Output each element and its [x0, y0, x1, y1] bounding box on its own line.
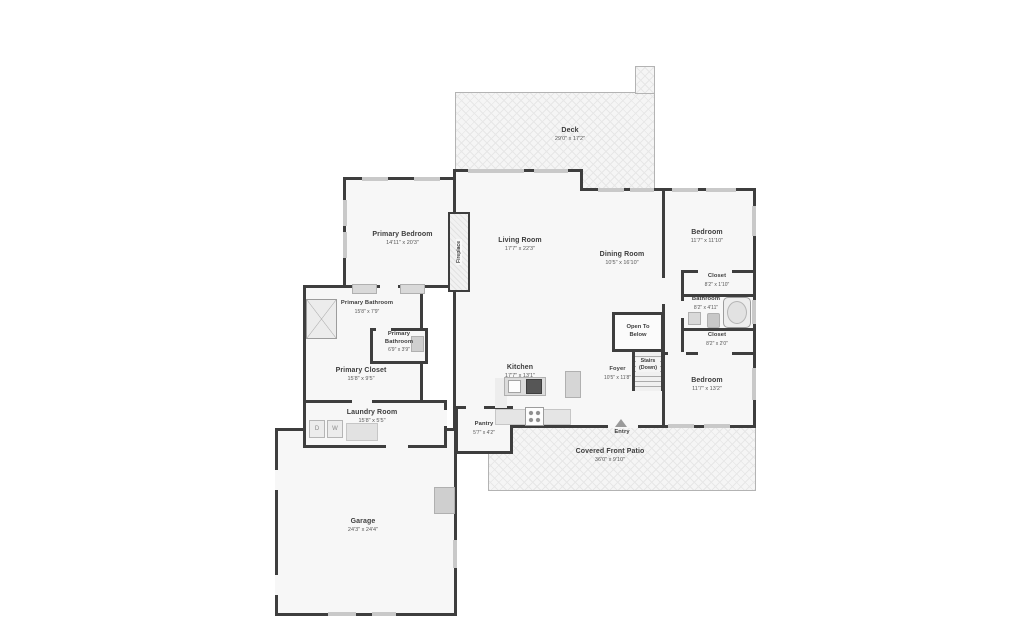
living-room-dims: 17'7" x 22'3" [458, 246, 582, 253]
kitchen-dims: 17'7" x 13'1" [468, 373, 572, 380]
window [668, 424, 694, 428]
dining-foyer-room [580, 188, 665, 428]
stairs-label-1: Stairs [636, 358, 660, 365]
pantry-name: Pantry [457, 421, 511, 429]
garage-label: Garage 24'3" x 24'4" [313, 517, 413, 534]
foyer-name: Foyer [585, 366, 650, 374]
primary-closet-label: Primary Closet 15'8" x 9'5" [311, 366, 411, 383]
cooktop [525, 407, 544, 426]
deck-label: Deck 29'0" x 17'2" [530, 126, 610, 143]
window [672, 188, 698, 192]
living-room-name: Living Room [458, 236, 582, 245]
closet-upper-dims: 8'2" x 1'10" [671, 282, 763, 289]
living-room-label: Living Room 17'7" x 22'3" [458, 236, 582, 253]
hall-door-opening [662, 278, 665, 304]
garage-side-opening-2 [275, 575, 278, 595]
garage-side-opening-1 [275, 470, 278, 490]
kitchen-name: Kitchen [468, 363, 572, 372]
laundry-room-dims: 15'8" x 5'5" [320, 418, 424, 425]
primary-bathroom-door-opening [380, 285, 398, 288]
closet-lower-dims: 8'2" x 2'0" [671, 341, 763, 348]
pantry-dims: 5'7" x 4'2" [457, 430, 511, 437]
sliding-door-window [534, 169, 568, 173]
deck-dims: 29'0" x 17'2" [530, 136, 610, 143]
window [704, 424, 730, 428]
garage-door-opening [386, 445, 408, 448]
entry-arrow-icon [615, 419, 627, 427]
washer-label: W [332, 426, 338, 432]
dining-room-dims: 10'5" x 16'10" [572, 260, 672, 267]
primary-bathroom2-label: Primary Bathroom 6'9" x 3'9" [374, 331, 424, 354]
bathroom-sink [688, 312, 701, 325]
window [598, 188, 624, 192]
foyer-label: Foyer 10'5" x 11'8" [585, 366, 650, 381]
closet-upper-label: Closet 8'2" x 1'10" [671, 273, 763, 288]
pantry-label: Pantry 5'7" x 4'2" [457, 421, 511, 436]
dining-room-name: Dining Room [572, 250, 672, 259]
primary-bathroom2-dims: 6'9" x 3'9" [374, 347, 424, 354]
closet-lower-name: Closet [671, 332, 763, 340]
open-to-below-label-1: Open To [626, 324, 649, 332]
bathroom-label: Bathroom 8'2" x 4'11" [666, 296, 746, 311]
primary-closet-door-opening [352, 400, 372, 403]
patio-name: Covered Front Patio [540, 447, 680, 456]
entry-label: Entry [598, 429, 646, 437]
bedroom-lower-label: Bedroom 11'7" x 13'2" [661, 376, 753, 393]
closet-lower-label: Closet 8'2" x 2'0" [671, 332, 763, 347]
window [343, 200, 347, 226]
laundry-door-opening [444, 410, 447, 426]
dryer-label: D [315, 426, 319, 432]
foyer-dims: 10'5" x 11'8" [585, 375, 650, 382]
deck-name: Deck [530, 126, 610, 135]
window [328, 612, 356, 616]
primary-bathroom-label: Primary Bathroom 15'8" x 7'9" [315, 300, 419, 315]
window [414, 177, 440, 181]
dining-room-label: Dining Room 10'5" x 16'10" [572, 250, 672, 267]
window [372, 612, 396, 616]
bedroom-lower-name: Bedroom [661, 376, 753, 385]
garage-name: Garage [313, 517, 413, 526]
primary-bathroom2-name: Primary Bathroom [374, 331, 424, 346]
window [630, 188, 654, 192]
bedroom-upper-name: Bedroom [661, 228, 753, 237]
pantry-door-opening [466, 406, 484, 409]
patio-label: Covered Front Patio 36'0" x 9'10" [540, 447, 680, 464]
bedroom-upper-dims: 11'7" x 11'10" [661, 238, 753, 245]
closet-lower-door-opening [698, 352, 732, 355]
bathroom-dims: 8'2" x 4'11" [666, 305, 746, 312]
vanity-sink [352, 284, 377, 294]
window [752, 300, 756, 324]
water-heater [434, 487, 455, 514]
primary-bedroom-name: Primary Bedroom [345, 230, 460, 239]
kitchen-range [526, 379, 542, 394]
bedroom-upper-label: Bedroom 11'7" x 11'10" [661, 228, 753, 245]
primary-bathroom-dims: 15'8" x 7'9" [315, 309, 419, 316]
primary-bedroom-dims: 14'11" x 20'3" [345, 240, 460, 247]
kitchen-sink [508, 380, 521, 393]
vanity-sink [400, 284, 425, 294]
window [362, 177, 388, 181]
primary-bedroom-label: Primary Bedroom 14'11" x 20'3" [345, 230, 460, 247]
kitchen-label: Kitchen 17'7" x 13'1" [468, 363, 572, 380]
open-to-below-label-2: Below [629, 332, 646, 340]
closet-upper-name: Closet [671, 273, 763, 281]
primary-bathroom-name: Primary Bathroom [315, 300, 419, 308]
laundry-room-label: Laundry Room 15'8" x 5'5" [320, 408, 424, 425]
laundry-counter [346, 423, 378, 441]
bathroom-name: Bathroom [666, 296, 746, 304]
primary-closet-dims: 15'8" x 9'5" [311, 376, 411, 383]
sliding-door-window [468, 169, 524, 173]
garage-dims: 24'3" x 24'4" [313, 527, 413, 534]
entry-name: Entry [598, 429, 646, 437]
bedroom-lower-door-opening [668, 352, 686, 355]
deck-notch-area [635, 66, 655, 94]
window [706, 188, 736, 192]
open-to-below-shaft: Open To Below [612, 312, 664, 352]
toilet [707, 313, 720, 328]
window [453, 540, 457, 568]
bedroom-lower-dims: 11'7" x 13'2" [661, 386, 753, 393]
laundry-room-name: Laundry Room [320, 408, 424, 417]
floor-plan-canvas: Open To Below Stairs (Down) Fireplace [0, 0, 1023, 620]
primary-closet-name: Primary Closet [311, 366, 411, 375]
patio-dims: 36'0" x 9'10" [540, 457, 680, 464]
